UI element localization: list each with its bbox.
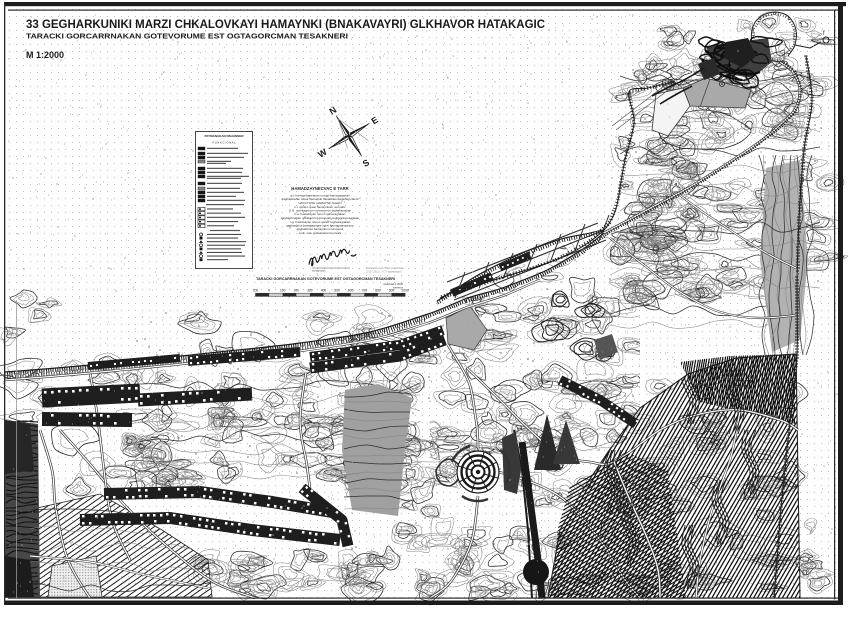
svg-text:100: 100 xyxy=(253,289,259,293)
svg-text:33 GEGHARKUNIKI MARZI CHKALOVK: 33 GEGHARKUNIKI MARZI CHKALOVKAYI HAMAYN… xyxy=(26,17,545,31)
svg-text:PAYMANAKAN NSHANNER: PAYMANAKAN NSHANNER xyxy=(204,134,244,138)
svg-text:300: 300 xyxy=(307,289,313,293)
svg-text:900: 900 xyxy=(389,289,395,293)
svg-text:q.sh. norn gortsaranneri norva: q.sh. norn gortsaranneri norvats xyxy=(299,231,342,235)
svg-text:0: 0 xyxy=(268,289,270,293)
svg-text:22.07.2011 t. N 27 ardzanagrut: 22.07.2011 t. N 27 ardzanagrut xyxy=(365,270,402,274)
svg-text:storagrutyun: storagrutyun xyxy=(312,270,326,273)
svg-text:700: 700 xyxy=(362,289,368,293)
svg-text:800: 800 xyxy=(375,289,381,293)
svg-text:500: 500 xyxy=(334,289,340,293)
svg-text:M 1:2000: M 1:2000 xyxy=(26,50,64,60)
svg-text:masshtab 1:2000: masshtab 1:2000 xyxy=(383,282,403,286)
svg-text:100: 100 xyxy=(280,289,286,293)
svg-text:F U N K C I O N A L: F U N K C I O N A L xyxy=(213,141,236,145)
svg-text:TARACKI GORCARRNAKAN GOTEVORUM: TARACKI GORCARRNAKAN GOTEVORUME EST OGTA… xyxy=(256,276,395,281)
svg-text:HAMADZAYNECVAC E TARR: HAMADZAYNECVAC E TARR xyxy=(291,186,348,191)
svg-text:600: 600 xyxy=(348,289,354,293)
svg-text:TARACKI GORCARRNAKAN GOTEVORUM: TARACKI GORCARRNAKAN GOTEVORUME EST OGTA… xyxy=(26,32,348,41)
svg-text:200: 200 xyxy=(294,289,300,293)
svg-text:1000: 1000 xyxy=(402,289,409,293)
svg-text:400: 400 xyxy=(321,289,327,293)
svg-text:hastatvats e N 254-N voroshman: hastatvats e N 254-N voroshman xyxy=(366,266,404,270)
